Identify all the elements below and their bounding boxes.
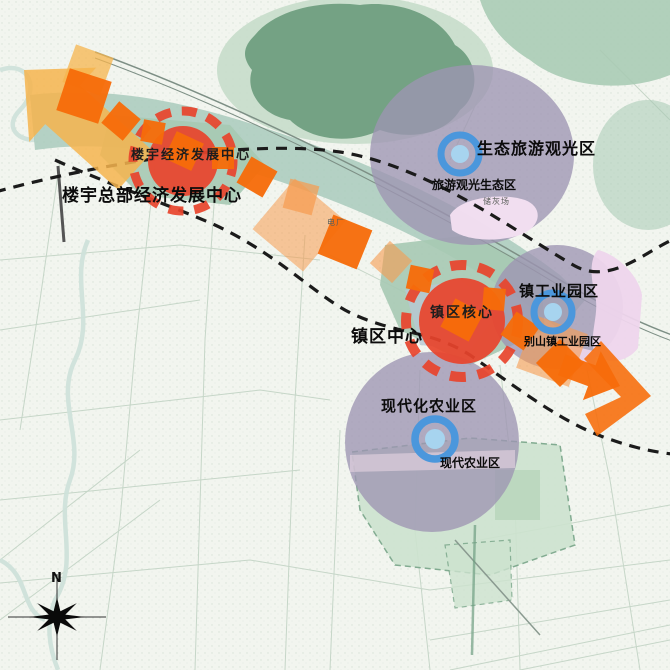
town-center-label: 镇区中心 [351, 329, 423, 346]
eco-tourism-sub-label: 旅游观光生态区 [432, 179, 516, 191]
eco-tourism-zone-label: 生态旅游观光区 [477, 141, 596, 157]
agri-zone-label: 现代化农业区 [381, 399, 477, 414]
industrial-sub-label: 别山镇工业园区 [524, 336, 601, 347]
field-southeast [445, 540, 512, 608]
agri-sub-label: 现代农业区 [440, 457, 500, 469]
ash-yard-label: 储灰场 [483, 198, 510, 206]
industrial-zone-label: 镇工业园区 [519, 284, 599, 299]
power-plant-label: 电厂 [327, 219, 345, 227]
planning-map: 楼宇经济发展中心 楼宇总部经济发展中心 生态旅游观光区 旅游观光生态区 储灰场 … [0, 0, 670, 670]
hq-zone-label: 楼宇总部经济发展中心 [62, 188, 242, 205]
compass-north-label: N [51, 571, 62, 586]
hq-core-label: 楼宇经济发展中心 [131, 149, 251, 162]
town-core-label: 镇区核心 [430, 306, 494, 320]
